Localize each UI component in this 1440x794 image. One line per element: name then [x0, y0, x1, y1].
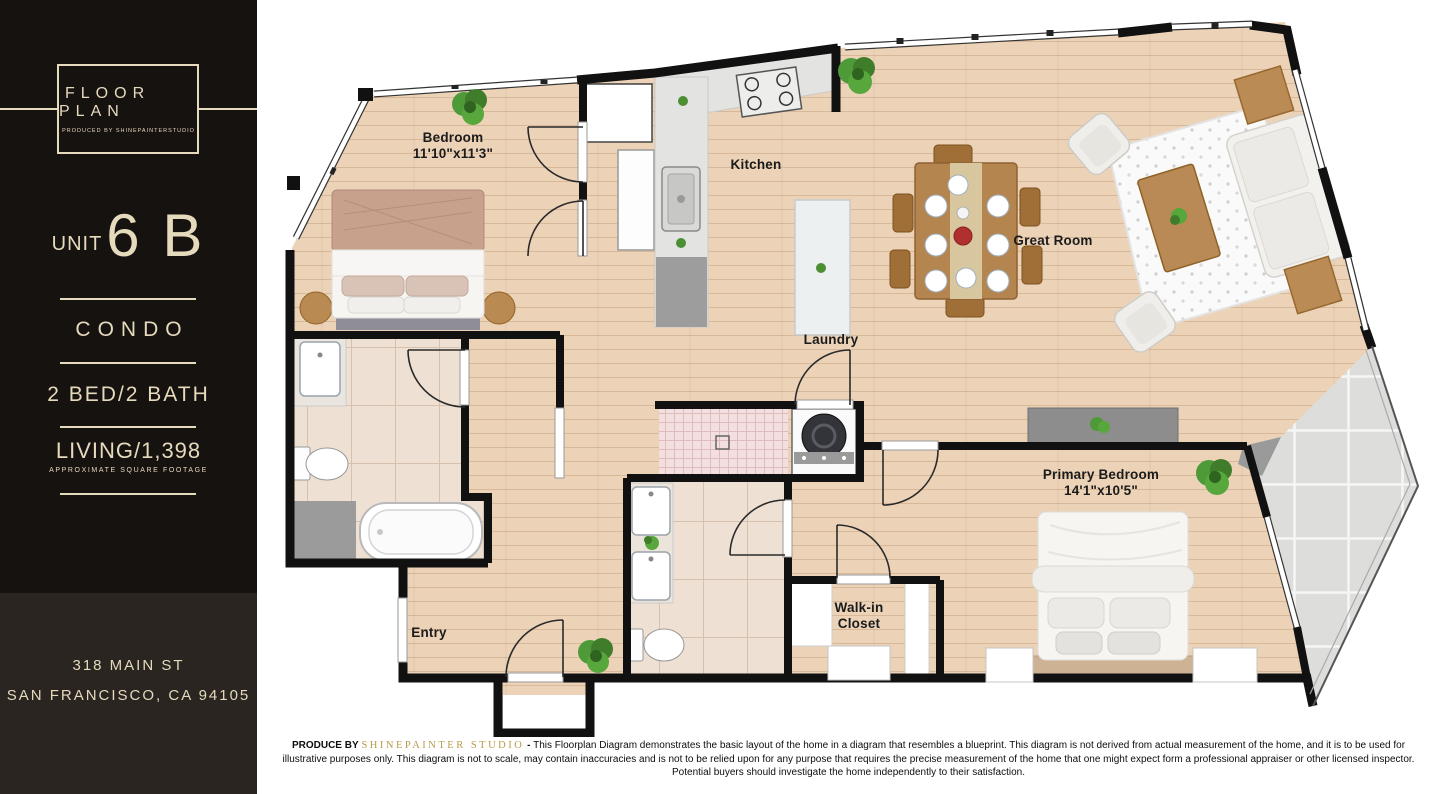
room-label-walk-in-closet: Walk-in Closet [827, 600, 891, 631]
room-label-primary-bedroom: Primary Bedroom 14'1"x10'5" [1043, 467, 1159, 498]
unit-row: UNIT 6 B [0, 208, 257, 263]
unit-label: UNIT [52, 233, 103, 263]
disclaimer: PRODUCE BY SHINEPAINTER STUDIO - This Fl… [257, 739, 1440, 780]
room-label-bedroom: Bedroom 11'10"x11'3" [413, 130, 493, 161]
vestibule-mat [503, 683, 586, 695]
washer-icon [792, 409, 856, 477]
stove-icon [736, 67, 801, 117]
room-label-kitchen: Kitchen [731, 157, 782, 173]
sidebar: FLOOR PLAN PRODUCED BY SHINEPAINTERSTUDI… [0, 0, 257, 794]
room-name: Walk-in Closet [827, 600, 891, 631]
brand-box: FLOOR PLAN PRODUCED BY SHINEPAINTERSTUDI… [57, 64, 199, 154]
sink-icon [300, 342, 340, 396]
primary-bed [1028, 512, 1202, 674]
plant-icon [676, 238, 686, 248]
floor-plan-page: FLOOR PLAN PRODUCED BY SHINEPAINTERSTUDI… [0, 0, 1440, 794]
produce-by-label: PRODUCE BY [292, 740, 359, 751]
property-type: CONDO [0, 318, 257, 342]
address-line1: 318 MAIN ST [0, 657, 257, 674]
plant-icon [678, 96, 688, 106]
room-label-laundry: Laundry [804, 332, 859, 348]
room-name: Bedroom [413, 130, 493, 146]
shower-pan [293, 501, 356, 561]
room-dimensions: 14'1"x10'5" [1043, 483, 1159, 499]
room-name: Entry [411, 625, 447, 641]
dishwasher [656, 257, 707, 327]
bathtub-icon [360, 503, 482, 561]
shower-floor [659, 409, 788, 478]
refrigerator [618, 150, 654, 250]
beds-baths: 2 BED/2 BATH [0, 383, 257, 407]
separator: - [527, 740, 530, 751]
room-label-entry: Entry [411, 625, 447, 641]
bedroom-closet [586, 84, 652, 142]
room-label-great-room: Great Room [1013, 233, 1092, 249]
divider [60, 362, 196, 364]
bedroom-bed [300, 190, 515, 330]
room-name: Laundry [804, 332, 859, 348]
room-name: Great Room [1013, 233, 1092, 249]
room-dimensions: 11'10"x11'3" [413, 146, 493, 162]
divider [60, 298, 196, 300]
floor-plan: Bedroom 11'10"x11'3" Kitchen Great Room … [257, 0, 1440, 737]
studio-name: SHINEPAINTER STUDIO [361, 740, 524, 751]
unit-number: 6 B [106, 208, 205, 263]
centerpiece [954, 227, 972, 245]
room-name: Kitchen [731, 157, 782, 173]
living-area: LIVING/1,398 [0, 438, 257, 464]
divider [60, 426, 196, 428]
room-name: Primary Bedroom [1043, 467, 1159, 483]
address-line2: SAN FRANCISCO, CA 94105 [0, 687, 257, 704]
living-area-note: APPROXIMATE SQUARE FOOTAGE [0, 467, 257, 474]
brand-title: FLOOR PLAN [59, 85, 197, 121]
brand-subtitle: PRODUCED BY SHINEPAINTERSTUDIO [61, 128, 195, 134]
plant-icon [816, 263, 826, 273]
divider [60, 493, 196, 495]
kitchen-sink-icon [662, 167, 700, 231]
